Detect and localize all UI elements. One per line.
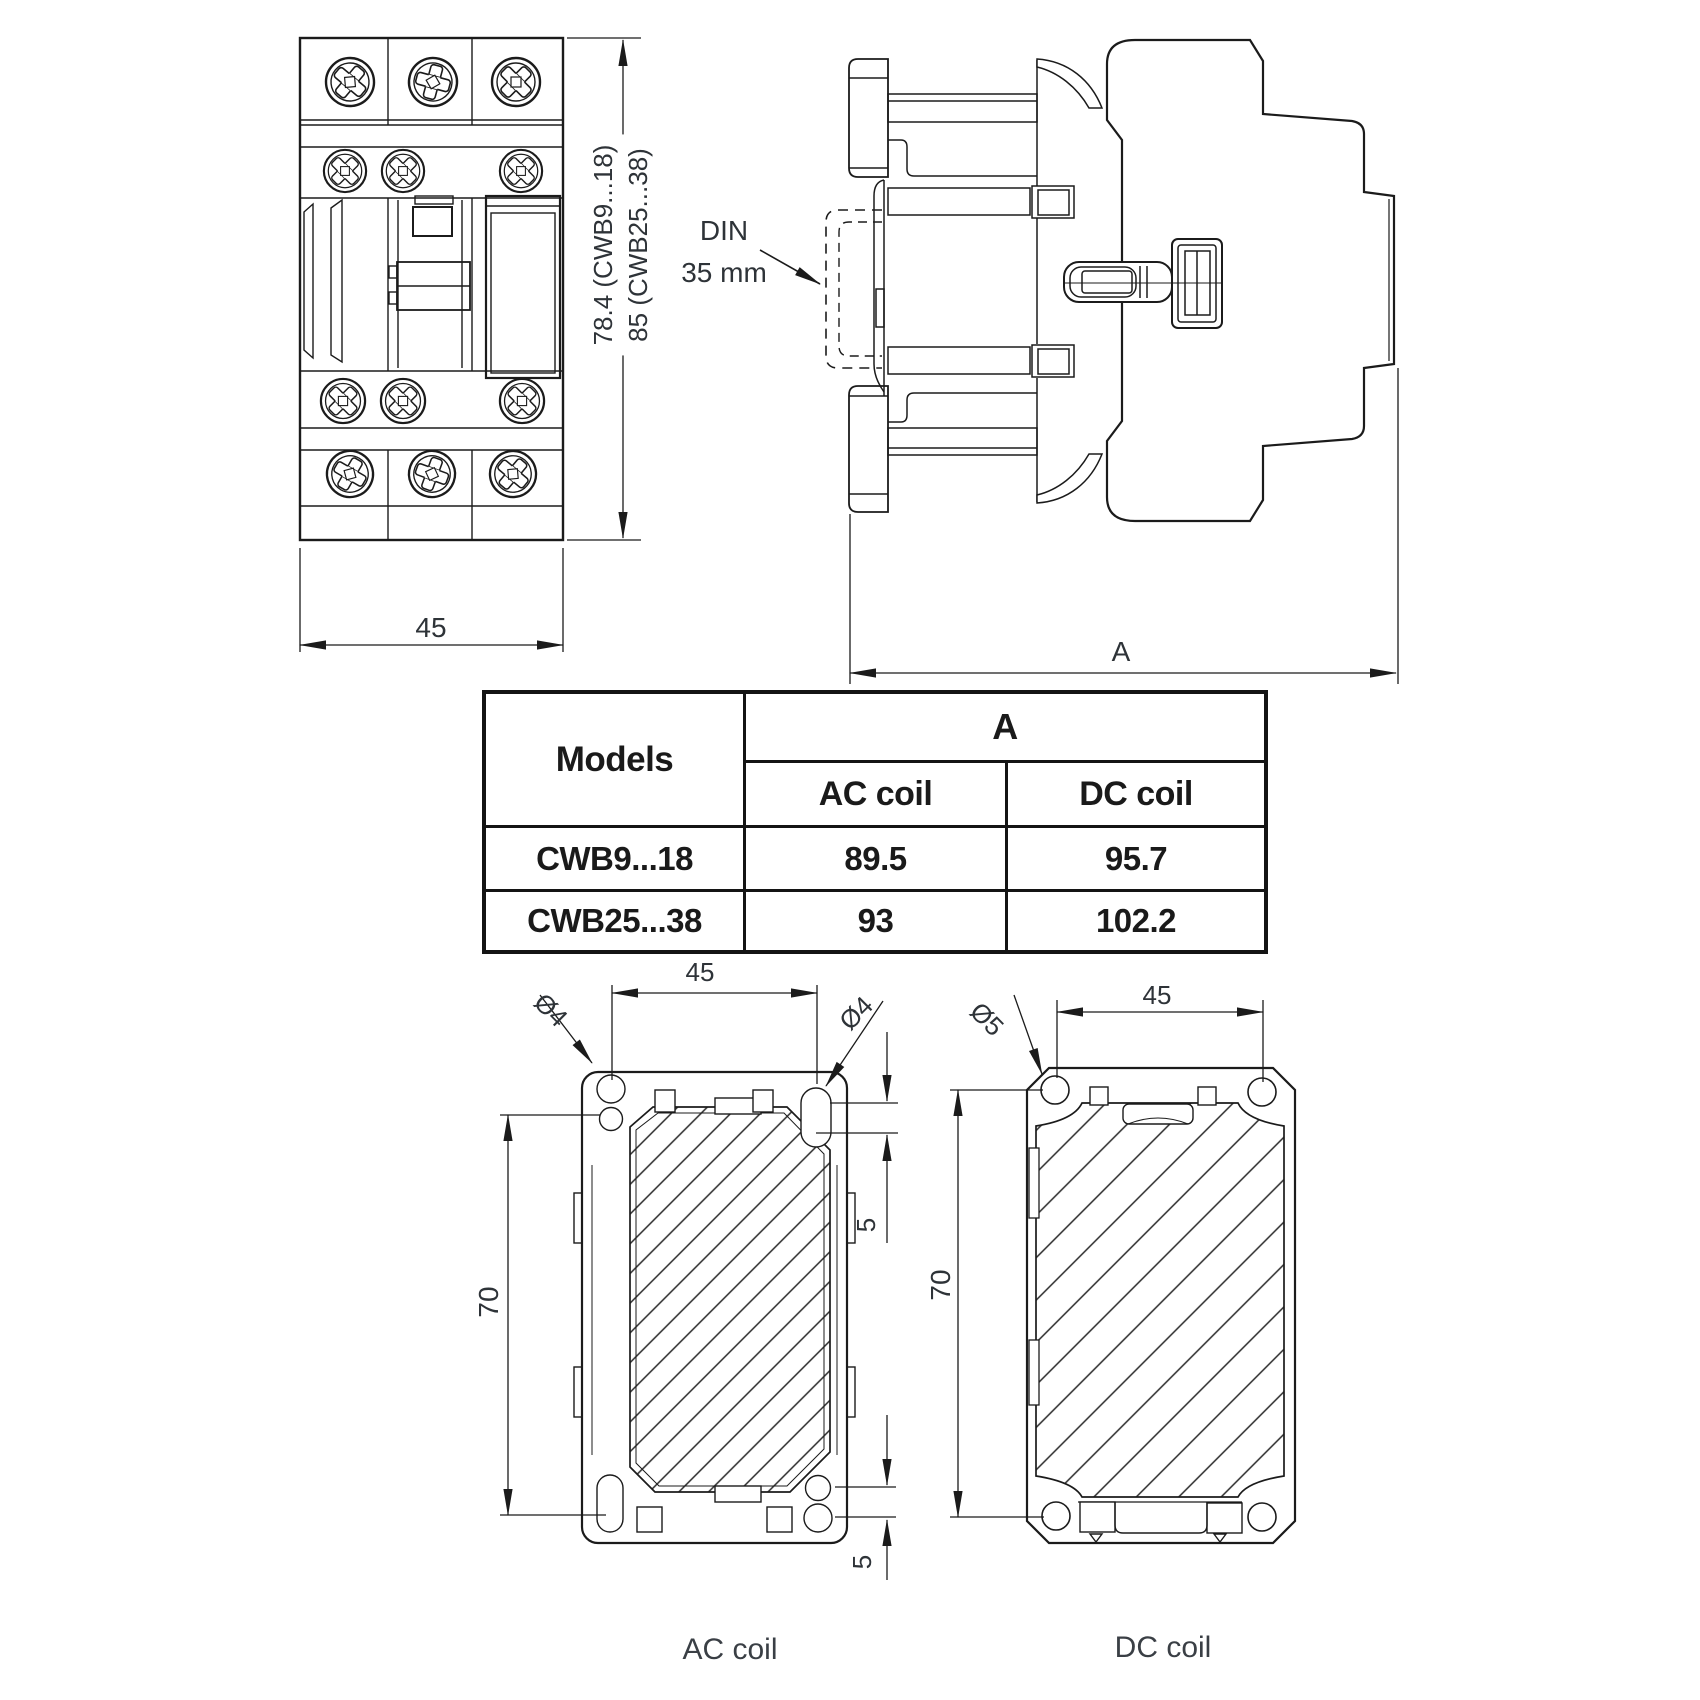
din-rail-label-line1: DIN (681, 210, 767, 252)
dim-label-side-width-a: A (1112, 638, 1131, 666)
dim-label-front-height-line2: 85 (CWB25...38) (621, 145, 656, 346)
technical-drawing-page: 45 78.4 (CWB9...18) 85 (CWB25...38) DIN … (0, 0, 1700, 1700)
ac-coil-caption: AC coil (682, 1633, 777, 1667)
dim-label-ac-height: 70 (475, 1286, 503, 1317)
table-header-dc-coil: DC coil (1008, 763, 1264, 825)
dimensions-table: Models A AC coil DC coil CWB9...18 89.5 … (482, 690, 1268, 954)
table-header-models: Models (486, 694, 743, 825)
table-cell-ac-0: 89.5 (746, 828, 1005, 889)
side-view-drawing (760, 40, 1394, 521)
din-rail-label: DIN 35 mm (681, 210, 767, 294)
table-cell-model-1: CWB25...38 (486, 892, 743, 950)
table-cell-ac-1: 93 (746, 892, 1005, 950)
dim-label-front-width: 45 (415, 614, 446, 642)
dim-label-front-height-line1: 78.4 (CWB9...18) (586, 145, 621, 346)
dim-label-dc-width: 45 (1143, 982, 1172, 1008)
table-header-ac-coil: AC coil (746, 763, 1005, 825)
dim-label-ac-pitch-top: 5 (853, 1218, 879, 1232)
table-cell-dc-0: 95.7 (1008, 828, 1264, 889)
ac-coil-drilling-plan (574, 1072, 855, 1543)
dc-coil-drilling-plan (1027, 1068, 1295, 1543)
dim-label-dc-height: 70 (927, 1269, 955, 1300)
dim-label-ac-width: 45 (686, 959, 715, 985)
din-rail-label-line2: 35 mm (681, 252, 767, 294)
dim-label-front-height: 78.4 (CWB9...18) 85 (CWB25...38) (580, 135, 662, 356)
table-header-a: A (746, 694, 1264, 760)
front-view-drawing (300, 38, 563, 540)
table-cell-model-0: CWB9...18 (486, 828, 743, 889)
table-cell-dc-1: 102.2 (1008, 892, 1264, 950)
dim-label-ac-pitch-bottom: 5 (849, 1555, 875, 1569)
dc-coil-caption: DC coil (1115, 1631, 1212, 1665)
